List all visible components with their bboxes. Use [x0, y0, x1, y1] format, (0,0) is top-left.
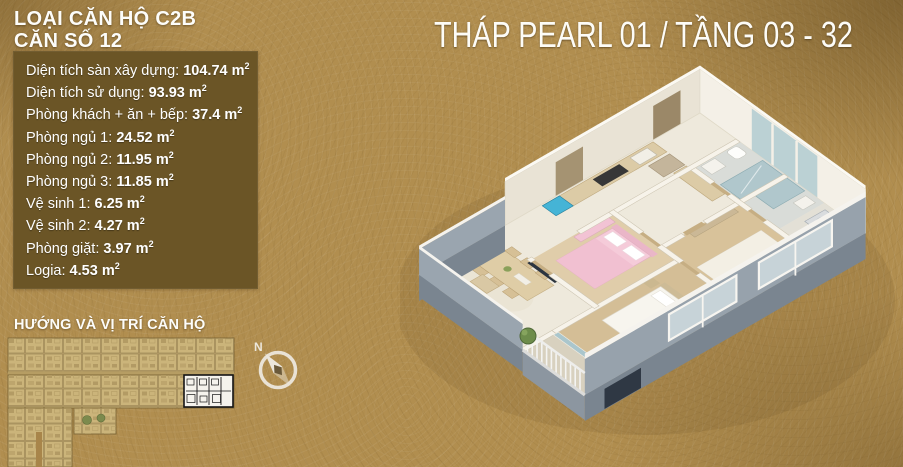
spec-unit: m: [136, 241, 149, 257]
tree-icon: [97, 414, 105, 422]
unit-type-heading: LOẠI CĂN HỘ C2B CĂN SỐ 12: [14, 8, 196, 52]
spec-value: 24.52: [116, 130, 152, 146]
area-spec-row: Vệ sinh 16.25 m2: [26, 193, 252, 215]
brochure-page: LOẠI CĂN HỘ C2B CĂN SỐ 12 Diện tích sàn …: [0, 0, 903, 467]
spec-value: 93.93: [149, 85, 185, 101]
spec-label: Vệ sinh 2: [26, 218, 95, 234]
spec-label: Phòng khách + ăn + bếp: [26, 107, 192, 123]
spec-unit: m: [156, 152, 169, 168]
spec-unit: m: [157, 130, 170, 146]
spec-unit-exponent: 2: [140, 217, 145, 227]
spec-label: Phòng ngủ 3: [26, 174, 116, 190]
spec-label: Vệ sinh 1: [26, 196, 95, 212]
area-spec-row: Vệ sinh 24.27 m2: [26, 215, 252, 237]
unit-type-line1: LOẠI CĂN HỘ C2B: [14, 8, 196, 30]
area-spec-row: Logia4.53 m2: [26, 260, 252, 282]
area-spec-row: Diện tích sàn xây dựng104.74 m2: [26, 60, 252, 82]
area-spec-list: Diện tích sàn xây dựng104.74 m2 Diện tíc…: [13, 51, 258, 282]
spec-label: Phòng ngủ 1: [26, 130, 116, 146]
spec-unit-exponent: 2: [245, 61, 250, 71]
spec-label: Phòng giặt: [26, 241, 103, 257]
spec-label: Diện tích sử dụng: [26, 85, 149, 101]
unit-number-line2: CĂN SỐ 12: [14, 30, 196, 52]
spec-unit-exponent: 2: [170, 128, 175, 138]
spec-unit: m: [189, 85, 202, 101]
spec-unit: m: [156, 174, 169, 190]
spec-value: 6.25: [95, 196, 123, 212]
spec-label: Diện tích sàn xây dựng: [26, 63, 183, 79]
spec-value: 11.95: [116, 152, 152, 168]
spec-unit-exponent: 2: [169, 150, 174, 160]
spec-unit-exponent: 2: [115, 261, 120, 271]
spec-unit: m: [127, 218, 140, 234]
spec-label: Logia: [26, 263, 70, 279]
spec-unit: m: [232, 63, 245, 79]
spec-unit-exponent: 2: [140, 194, 145, 204]
spec-value: 104.74: [183, 63, 227, 79]
area-spec-row: Phòng ngủ 311.85 m2: [26, 171, 252, 193]
spec-unit: m: [127, 196, 140, 212]
compass-icon: N: [244, 334, 308, 398]
area-spec-panel: Diện tích sàn xây dựng104.74 m2 Diện tíc…: [13, 51, 258, 289]
tower-floor-title: THÁP PEARL 01 / TẦNG 03 - 32: [434, 14, 903, 56]
spec-unit-exponent: 2: [202, 83, 207, 93]
tree-icon: [83, 416, 92, 425]
spec-value: 37.4: [192, 107, 220, 123]
area-spec-row: Phòng ngủ 211.95 m2: [26, 149, 252, 171]
compass-north-label: N: [254, 340, 263, 354]
spec-value: 11.85: [116, 174, 152, 190]
spec-label: Phòng ngủ 2: [26, 152, 116, 168]
spec-unit-exponent: 2: [169, 172, 174, 182]
area-spec-row: Phòng ngủ 124.52 m2: [26, 127, 252, 149]
spec-value: 3.97: [103, 241, 131, 257]
unit-12-highlight: [184, 375, 233, 407]
spec-unit: m: [102, 263, 115, 279]
floor-plate-diagram: [6, 336, 241, 467]
apartment-3d-render: [400, 60, 900, 467]
floor-plate-amenity-block: [74, 408, 116, 434]
area-spec-row: Phòng khách + ăn + bếp37.4 m2: [26, 104, 252, 126]
floor-plate-wing-left: [8, 408, 72, 467]
spec-unit: m: [224, 107, 237, 123]
area-spec-row: Diện tích sử dụng93.93 m2: [26, 82, 252, 104]
spec-unit-exponent: 2: [149, 239, 154, 249]
area-spec-row: Phòng giặt3.97 m2: [26, 238, 252, 260]
spec-unit-exponent: 2: [237, 106, 242, 116]
orientation-section-title: HƯỚNG VÀ VỊ TRÍ CĂN HỘ: [14, 317, 206, 333]
spec-value: 4.53: [70, 263, 98, 279]
spec-value: 4.27: [95, 218, 123, 234]
